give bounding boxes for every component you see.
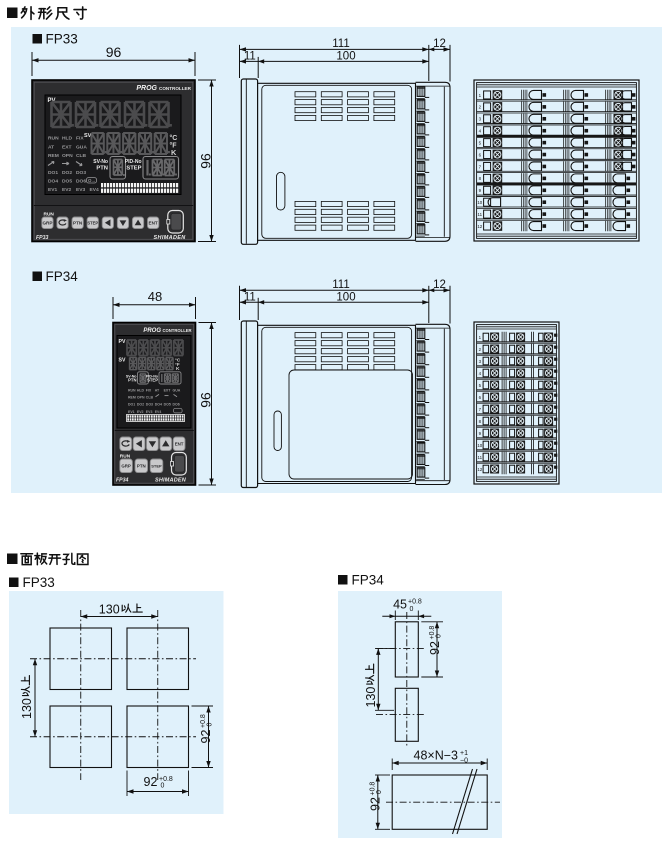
svg-text:EV2: EV2 xyxy=(137,410,144,414)
svg-text:SHIMADEN: SHIMADEN xyxy=(155,478,187,484)
svg-text:STEP: STEP xyxy=(147,378,158,383)
svg-text:EV3: EV3 xyxy=(76,187,86,193)
svg-text:EV4: EV4 xyxy=(90,187,100,193)
svg-text:11: 11 xyxy=(478,212,483,217)
svg-text:FP34: FP34 xyxy=(352,573,385,588)
svg-text:10: 10 xyxy=(477,200,482,205)
svg-text:92: 92 xyxy=(369,797,383,811)
svg-text:96: 96 xyxy=(198,153,214,169)
svg-text:130: 130 xyxy=(99,603,120,617)
svg-text:92: 92 xyxy=(428,641,442,655)
svg-text:EXT: EXT xyxy=(62,145,72,151)
svg-text:SV: SV xyxy=(84,133,92,139)
svg-text:DO6: DO6 xyxy=(76,179,86,185)
svg-text:PROG: PROG xyxy=(143,328,161,334)
svg-text:DO3: DO3 xyxy=(146,403,153,407)
svg-text:DO6: DO6 xyxy=(173,403,180,407)
svg-text:CLB: CLB xyxy=(146,396,154,400)
svg-text:°C: °C xyxy=(170,134,178,142)
svg-text:PID-No: PID-No xyxy=(125,159,142,165)
svg-text:EV4: EV4 xyxy=(155,410,162,414)
svg-text:GUA: GUA xyxy=(173,389,181,393)
svg-text:92: 92 xyxy=(144,775,158,789)
svg-text:FP34: FP34 xyxy=(116,478,129,484)
svg-text:SV-No: SV-No xyxy=(93,159,108,165)
svg-text:SHIMADEN: SHIMADEN xyxy=(154,235,187,241)
svg-text:STEP: STEP xyxy=(151,464,162,469)
svg-text:10: 10 xyxy=(477,443,482,448)
svg-text:DO4: DO4 xyxy=(48,179,58,185)
svg-text:SV: SV xyxy=(119,358,126,364)
svg-text:+1: +1 xyxy=(460,750,468,757)
svg-text:CLB: CLB xyxy=(76,153,87,159)
svg-text:PTN: PTN xyxy=(96,166,108,172)
svg-text:DO2: DO2 xyxy=(62,170,72,176)
svg-text:−0: −0 xyxy=(460,758,468,765)
svg-text:EV1: EV1 xyxy=(48,187,58,193)
svg-text:GUA: GUA xyxy=(76,145,87,151)
svg-text:O→: O→ xyxy=(88,178,96,183)
svg-text:PTN: PTN xyxy=(137,464,146,469)
svg-text:HLD: HLD xyxy=(62,136,73,142)
svg-text:GRP: GRP xyxy=(121,464,131,469)
svg-text:CONTROLLER: CONTROLLER xyxy=(159,86,192,91)
svg-text:EXT: EXT xyxy=(164,389,172,393)
svg-text:REM: REM xyxy=(128,396,136,400)
svg-text:GRP: GRP xyxy=(42,221,52,226)
svg-text:DO4: DO4 xyxy=(155,403,162,407)
svg-text:CONTROLLER: CONTROLLER xyxy=(163,328,192,333)
svg-text:EV2: EV2 xyxy=(62,187,72,193)
svg-text:0: 0 xyxy=(161,783,165,790)
svg-text:K: K xyxy=(171,148,177,157)
svg-text:130: 130 xyxy=(364,687,378,708)
svg-text:PTN: PTN xyxy=(73,221,83,226)
svg-text:0: 0 xyxy=(207,723,214,727)
svg-text:111: 111 xyxy=(332,279,349,291)
svg-text:ENT: ENT xyxy=(175,442,184,447)
svg-text:48: 48 xyxy=(148,289,162,304)
svg-text:FIX: FIX xyxy=(146,389,152,393)
svg-text:92: 92 xyxy=(199,730,213,744)
svg-text:EV1: EV1 xyxy=(128,410,135,414)
svg-text:FP33: FP33 xyxy=(36,235,49,241)
svg-text:DO5: DO5 xyxy=(164,403,171,407)
svg-text:K: K xyxy=(176,366,180,372)
svg-text:48×N−3: 48×N−3 xyxy=(414,749,459,763)
svg-text:FIX: FIX xyxy=(76,136,84,142)
svg-text:STEP: STEP xyxy=(126,166,141,172)
svg-text:FP34: FP34 xyxy=(46,269,79,284)
svg-text:OPN: OPN xyxy=(62,153,73,159)
svg-text:45: 45 xyxy=(393,598,407,612)
svg-text:12: 12 xyxy=(477,467,482,472)
svg-text:DO1: DO1 xyxy=(128,403,135,407)
svg-text:PV: PV xyxy=(119,339,126,345)
svg-text:0: 0 xyxy=(410,606,414,613)
svg-text:FP33: FP33 xyxy=(46,31,78,46)
svg-text:REM: REM xyxy=(48,153,59,159)
svg-text:RUN: RUN xyxy=(128,389,136,393)
svg-text:PROG: PROG xyxy=(136,85,157,92)
svg-text:100: 100 xyxy=(336,291,355,303)
svg-text:11: 11 xyxy=(478,455,483,460)
svg-text:STEP: STEP xyxy=(87,221,98,226)
svg-text:0: 0 xyxy=(436,634,443,638)
svg-text:DO3: DO3 xyxy=(76,170,86,176)
svg-text:+0.8: +0.8 xyxy=(408,599,422,606)
svg-text:EV3: EV3 xyxy=(146,410,153,414)
svg-text:12: 12 xyxy=(477,224,482,229)
svg-text:ENT: ENT xyxy=(149,221,158,226)
svg-text:DO1: DO1 xyxy=(48,170,58,176)
svg-text:96: 96 xyxy=(198,392,214,408)
svg-text:HLD: HLD xyxy=(137,389,145,393)
svg-text:130: 130 xyxy=(20,698,34,719)
svg-text:0: 0 xyxy=(376,790,383,794)
svg-text:DO2: DO2 xyxy=(137,403,144,407)
svg-text:100: 100 xyxy=(336,50,355,62)
svg-text:DO5: DO5 xyxy=(62,179,72,185)
svg-text:AT: AT xyxy=(48,145,54,151)
svg-text:OPN: OPN xyxy=(137,396,145,400)
svg-text:RUN: RUN xyxy=(48,136,59,142)
svg-text:96: 96 xyxy=(106,44,122,60)
svg-text:111: 111 xyxy=(332,38,349,50)
svg-text:PTN: PTN xyxy=(128,378,136,383)
svg-text:FP33: FP33 xyxy=(23,575,55,590)
